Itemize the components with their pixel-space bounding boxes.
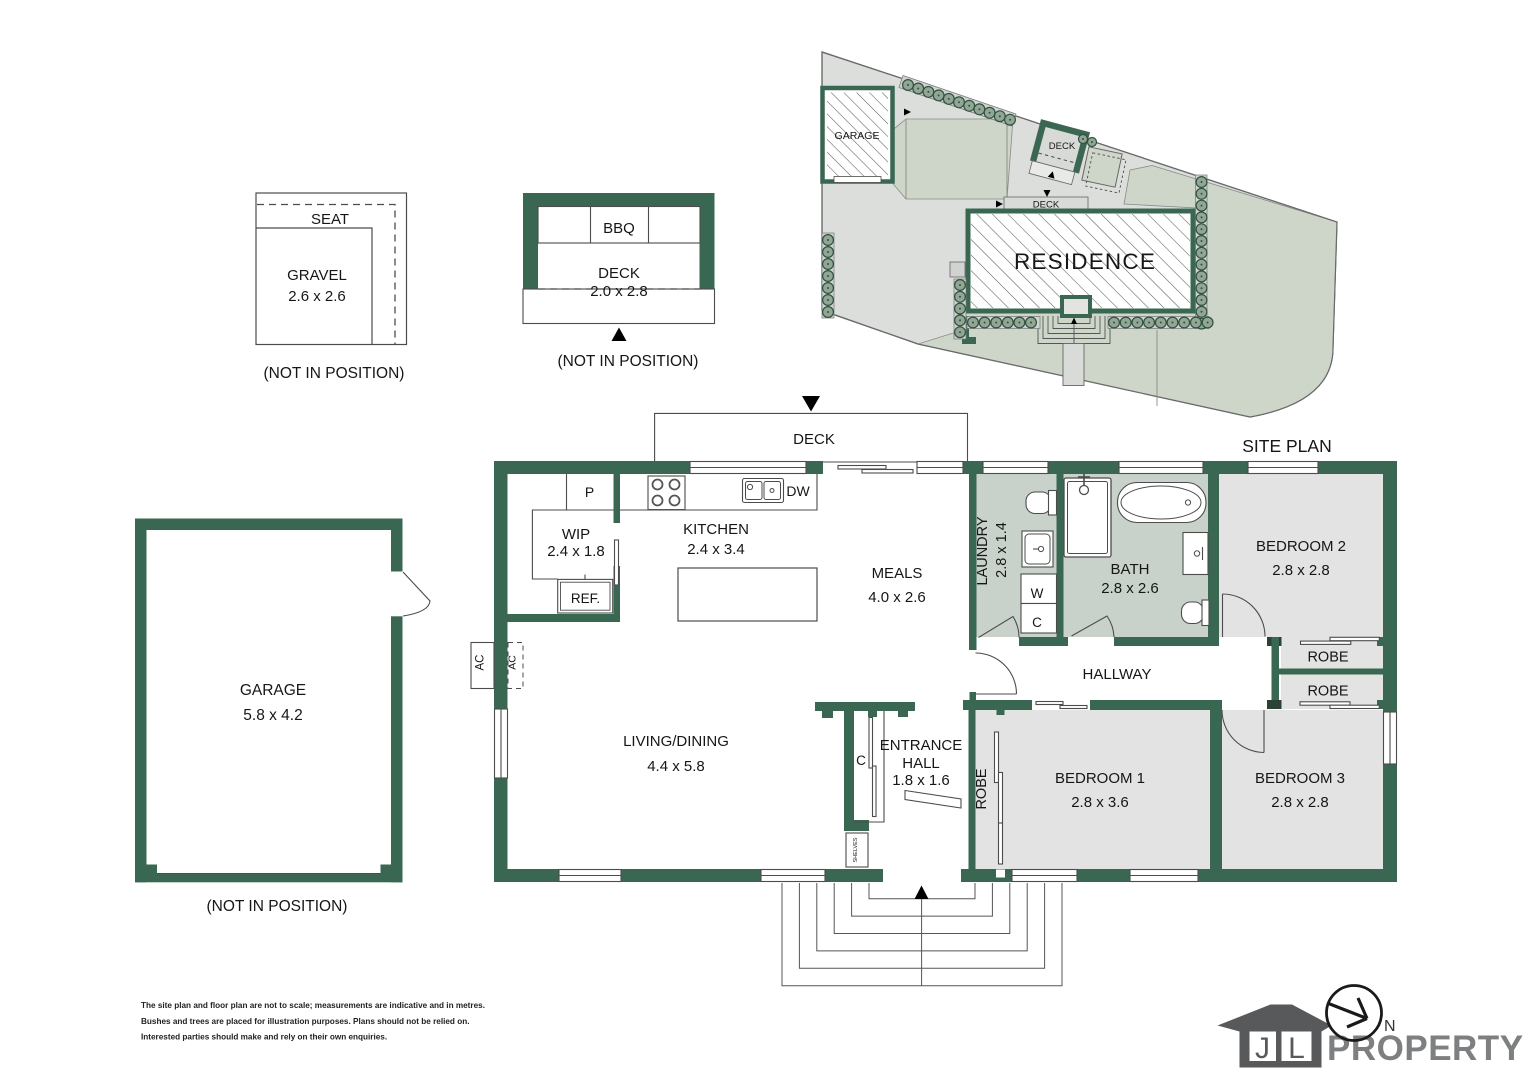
svg-text:L: L: [1288, 1032, 1305, 1065]
svg-text:BEDROOM 1: BEDROOM 1: [1055, 770, 1145, 787]
svg-text:HALLWAY: HALLWAY: [1083, 666, 1152, 683]
svg-text:J: J: [1255, 1032, 1270, 1065]
svg-text:DW: DW: [786, 483, 810, 499]
svg-text:Interested parties should make: Interested parties should make and rely …: [141, 1033, 387, 1042]
svg-text:DECK: DECK: [598, 265, 640, 282]
svg-text:DECK: DECK: [793, 431, 835, 448]
svg-text:LAUNDRY: LAUNDRY: [975, 516, 991, 585]
svg-text:REF.: REF.: [571, 591, 600, 606]
svg-text:C: C: [856, 753, 866, 768]
svg-text:LIVING/DINING: LIVING/DINING: [623, 733, 729, 750]
svg-text:BEDROOM 2: BEDROOM 2: [1256, 538, 1346, 555]
svg-text:KITCHEN: KITCHEN: [683, 521, 749, 538]
svg-text:Bushes and trees are placed fo: Bushes and trees are placed for illustra…: [141, 1017, 469, 1026]
svg-text:(NOT IN POSITION): (NOT IN POSITION): [558, 353, 699, 370]
svg-text:The site plan and floor plan a: The site plan and floor plan are not to …: [141, 1001, 485, 1010]
svg-text:GARAGE: GARAGE: [240, 682, 306, 699]
svg-text:BEDROOM 3: BEDROOM 3: [1255, 770, 1345, 787]
svg-text:BATH: BATH: [1111, 561, 1150, 578]
svg-text:GARAGE: GARAGE: [835, 130, 880, 142]
svg-text:AC: AC: [507, 655, 519, 670]
svg-text:2.0 x 2.8: 2.0 x 2.8: [590, 283, 648, 300]
svg-text:C: C: [1032, 615, 1042, 630]
svg-text:2.4 x 3.4: 2.4 x 3.4: [687, 541, 745, 558]
svg-text:AC: AC: [475, 655, 487, 671]
svg-text:W: W: [1031, 586, 1044, 601]
svg-text:WIP: WIP: [562, 526, 590, 543]
svg-text:MEALS: MEALS: [872, 565, 923, 582]
svg-text:RESIDENCE: RESIDENCE: [1014, 249, 1156, 274]
svg-text:(NOT IN POSITION): (NOT IN POSITION): [264, 365, 405, 382]
svg-text:GRAVEL: GRAVEL: [287, 267, 347, 284]
svg-text:DECK: DECK: [1049, 141, 1076, 152]
svg-text:ROBE: ROBE: [1307, 684, 1348, 700]
svg-text:SEAT: SEAT: [311, 211, 349, 228]
svg-text:ROBE: ROBE: [974, 768, 990, 809]
svg-text:P: P: [585, 484, 594, 500]
svg-text:4.0 x 2.6: 4.0 x 2.6: [868, 589, 926, 606]
svg-text:PROPERTY: PROPERTY: [1327, 1029, 1524, 1068]
svg-text:4.4 x 5.8: 4.4 x 5.8: [647, 758, 705, 775]
svg-text:SITE PLAN: SITE PLAN: [1242, 436, 1331, 456]
svg-text:SHELVES: SHELVES: [853, 837, 859, 862]
svg-text:2.8 x 2.6: 2.8 x 2.6: [1101, 580, 1159, 597]
svg-text:N: N: [1384, 1018, 1396, 1035]
svg-text:2.8 x 1.4: 2.8 x 1.4: [994, 522, 1010, 578]
svg-text:2.8 x 3.6: 2.8 x 3.6: [1071, 794, 1129, 811]
svg-text:5.8 x 4.2: 5.8 x 4.2: [243, 707, 302, 724]
svg-text:HALL: HALL: [902, 755, 940, 772]
svg-text:(NOT IN POSITION): (NOT IN POSITION): [207, 898, 348, 915]
svg-text:ENTRANCE: ENTRANCE: [880, 737, 963, 754]
svg-text:1.8 x 1.6: 1.8 x 1.6: [892, 772, 950, 789]
svg-text:BBQ: BBQ: [603, 220, 635, 237]
svg-text:ROBE: ROBE: [1307, 650, 1348, 666]
svg-text:2.8 x 2.8: 2.8 x 2.8: [1272, 562, 1330, 579]
svg-text:2.4 x 1.8: 2.4 x 1.8: [547, 543, 605, 560]
svg-text:2.6 x 2.6: 2.6 x 2.6: [288, 288, 346, 305]
svg-text:2.8 x 2.8: 2.8 x 2.8: [1271, 794, 1329, 811]
